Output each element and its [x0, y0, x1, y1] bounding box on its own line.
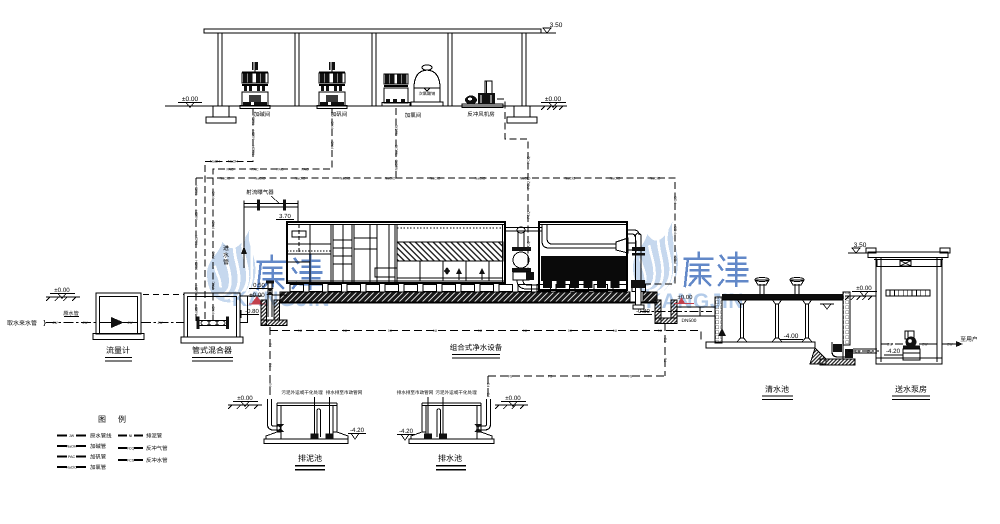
svg-text:NI: NI	[269, 363, 273, 367]
svg-text:管式混合器: 管式混合器	[192, 346, 232, 355]
svg-text:-4.20: -4.20	[350, 427, 365, 434]
svg-text:PAC: PAC	[212, 281, 216, 289]
svg-text:NI: NI	[269, 383, 273, 387]
svg-text:NaClO: NaClO	[340, 177, 351, 181]
svg-text:FCQ: FCQ	[527, 156, 531, 164]
svg-text:-4.20: -4.20	[886, 348, 901, 355]
svg-text:NaClO: NaClO	[220, 177, 231, 181]
svg-text:NI: NI	[343, 329, 347, 333]
svg-text:PAC: PAC	[226, 168, 234, 172]
svg-text:NaOH: NaOH	[228, 160, 238, 164]
svg-text:反冲风机房: 反冲风机房	[467, 111, 495, 118]
svg-text:FS: FS	[508, 375, 513, 379]
svg-text:排水排至市政管网: 排水排至市政管网	[326, 390, 363, 395]
svg-text:加矾间: 加矾间	[331, 111, 348, 118]
svg-text:NaClO: NaClO	[475, 177, 486, 181]
svg-text:±0.00: ±0.00	[182, 96, 199, 103]
svg-text:NaClO: NaClO	[395, 159, 399, 170]
svg-text:PAC: PAC	[251, 168, 259, 172]
svg-text:±0.00: ±0.00	[237, 395, 253, 402]
svg-text:至用户: 至用户	[960, 336, 977, 343]
svg-text:JW: JW	[69, 434, 75, 438]
svg-text:污泥外运或干化处理: 污泥外运或干化处理	[435, 390, 477, 395]
svg-text:±0.00: ±0.00	[54, 287, 70, 294]
svg-text:NaOH: NaOH	[252, 145, 256, 155]
svg-text:送水泵房: 送水泵房	[895, 385, 927, 394]
svg-text:3.70: 3.70	[279, 213, 291, 220]
svg-text:排水排至市政管网: 排水排至市政管网	[397, 390, 434, 395]
svg-text:例: 例	[118, 415, 126, 424]
svg-text:±0.00: ±0.00	[545, 96, 562, 103]
svg-text:±0.00: ±0.00	[505, 395, 521, 402]
svg-text:-4.20: -4.20	[399, 428, 414, 435]
svg-text:加氯间: 加氯间	[405, 112, 422, 119]
svg-text:原水管: 原水管	[63, 310, 79, 317]
svg-text:JW: JW	[157, 321, 163, 325]
svg-text:NaClO: NaClO	[520, 177, 531, 181]
svg-text:流量计: 流量计	[106, 346, 130, 355]
svg-text:NaOH: NaOH	[195, 305, 199, 315]
svg-text:反冲水管: 反冲水管	[146, 457, 168, 464]
svg-text:NaClO: NaClO	[610, 177, 621, 181]
svg-text:PAC: PAC	[301, 168, 309, 172]
svg-text:JW: JW	[52, 321, 58, 325]
svg-text:2W: 2W	[887, 343, 893, 347]
svg-text:NaOH: NaOH	[195, 285, 199, 295]
svg-text:2W: 2W	[867, 350, 873, 354]
svg-text:FCS: FCS	[127, 459, 135, 463]
svg-text:NaClO: NaClO	[66, 466, 77, 470]
svg-text:NaClO: NaClO	[430, 177, 441, 181]
svg-text:3.50: 3.50	[550, 22, 563, 29]
svg-text:NaClO: NaClO	[385, 177, 396, 181]
svg-text:排水池: 排水池	[438, 454, 462, 463]
svg-text:2W: 2W	[855, 350, 861, 354]
svg-text:PAC: PAC	[276, 168, 284, 172]
svg-text:FCQ: FCQ	[527, 181, 531, 189]
svg-text:NaOH: NaOH	[195, 185, 199, 195]
svg-text:污泥外运或干化处理: 污泥外运或干化处理	[281, 390, 323, 395]
svg-text:FS: FS	[628, 375, 633, 379]
svg-text:排泥管: 排泥管	[146, 433, 163, 440]
svg-text:NI: NI	[269, 343, 273, 347]
svg-text:NaClO: NaClO	[295, 177, 306, 181]
svg-text:NaOH: NaOH	[210, 160, 220, 164]
svg-text:组合式净水设备: 组合式净水设备	[450, 343, 503, 352]
svg-text:NaOH: NaOH	[252, 115, 256, 125]
svg-text:±0.00: ±0.00	[678, 294, 694, 301]
svg-text:FS: FS	[664, 337, 668, 342]
svg-text:NI: NI	[388, 329, 392, 333]
svg-text:NaOH: NaOH	[195, 235, 199, 245]
svg-text:加碱管: 加碱管	[90, 443, 107, 450]
svg-text:PAC: PAC	[331, 141, 335, 149]
svg-text:NI: NI	[658, 329, 662, 333]
svg-text:NI: NI	[613, 329, 617, 333]
svg-text:反冲气管: 反冲气管	[146, 445, 168, 452]
svg-text:NaOH: NaOH	[195, 210, 199, 220]
svg-text:NI: NI	[433, 329, 437, 333]
svg-text:NI: NI	[129, 434, 133, 438]
svg-text:加碱间: 加碱间	[254, 111, 271, 118]
svg-text:FS: FS	[548, 375, 553, 379]
svg-text:JW: JW	[82, 321, 88, 325]
svg-text:NaClO: NaClO	[565, 177, 576, 181]
svg-text:NaOH: NaOH	[67, 445, 77, 449]
svg-text:清水池: 清水池	[765, 385, 789, 394]
svg-text:FS: FS	[487, 392, 491, 397]
svg-text:NaClO: NaClO	[395, 124, 399, 135]
svg-text:取水来水管: 取水来水管	[7, 319, 37, 327]
svg-text:NI: NI	[478, 329, 482, 333]
svg-text:FCS: FCS	[674, 256, 678, 264]
svg-text:原水管线: 原水管线	[90, 433, 112, 440]
svg-text:FCQ: FCQ	[127, 447, 135, 451]
svg-text:PAC: PAC	[212, 251, 216, 259]
svg-text:-0.80: -0.80	[245, 308, 259, 315]
svg-text:NI: NI	[298, 329, 302, 333]
svg-text:NI: NI	[523, 329, 527, 333]
svg-text:FS: FS	[588, 375, 593, 379]
svg-text:JW: JW	[127, 321, 133, 325]
svg-text:FS: FS	[487, 382, 491, 387]
svg-text:NaOH: NaOH	[195, 260, 199, 270]
svg-text:DN500: DN500	[682, 318, 697, 324]
svg-text:PAC: PAC	[68, 455, 76, 459]
svg-text:FCS: FCS	[674, 226, 678, 234]
svg-text:次氯酸钠: 次氯酸钠	[419, 91, 436, 96]
svg-text:FCS: FCS	[674, 196, 678, 204]
svg-text:NaClO: NaClO	[395, 144, 399, 155]
svg-text:加矾管: 加矾管	[90, 454, 107, 461]
svg-text:射流曝气器: 射流曝气器	[246, 189, 274, 196]
svg-text:FCQ: FCQ	[527, 241, 531, 249]
svg-text:PAC: PAC	[212, 191, 216, 199]
svg-text:2W: 2W	[922, 343, 928, 347]
svg-text:PAC: PAC	[212, 221, 216, 229]
svg-text:2W: 2W	[947, 343, 953, 347]
svg-text:PAC: PAC	[212, 306, 216, 314]
svg-text:进水管: 进水管	[223, 245, 229, 266]
svg-text:加氯管: 加氯管	[90, 464, 107, 471]
svg-text:-4.00: -4.00	[784, 333, 799, 340]
svg-text:0.50: 0.50	[253, 282, 265, 289]
svg-text:FCQ: FCQ	[527, 211, 531, 219]
svg-text:NI: NI	[568, 329, 572, 333]
svg-text:排泥池: 排泥池	[298, 454, 322, 463]
svg-text:PAC: PAC	[331, 121, 335, 129]
svg-text:NaOH: NaOH	[252, 130, 256, 140]
svg-text:FS: FS	[664, 357, 668, 362]
svg-text:图: 图	[98, 415, 106, 424]
svg-text:±0.00: ±0.00	[856, 285, 872, 292]
svg-text:NaClO: NaClO	[255, 177, 266, 181]
svg-text:NaClO: NaClO	[650, 177, 661, 181]
